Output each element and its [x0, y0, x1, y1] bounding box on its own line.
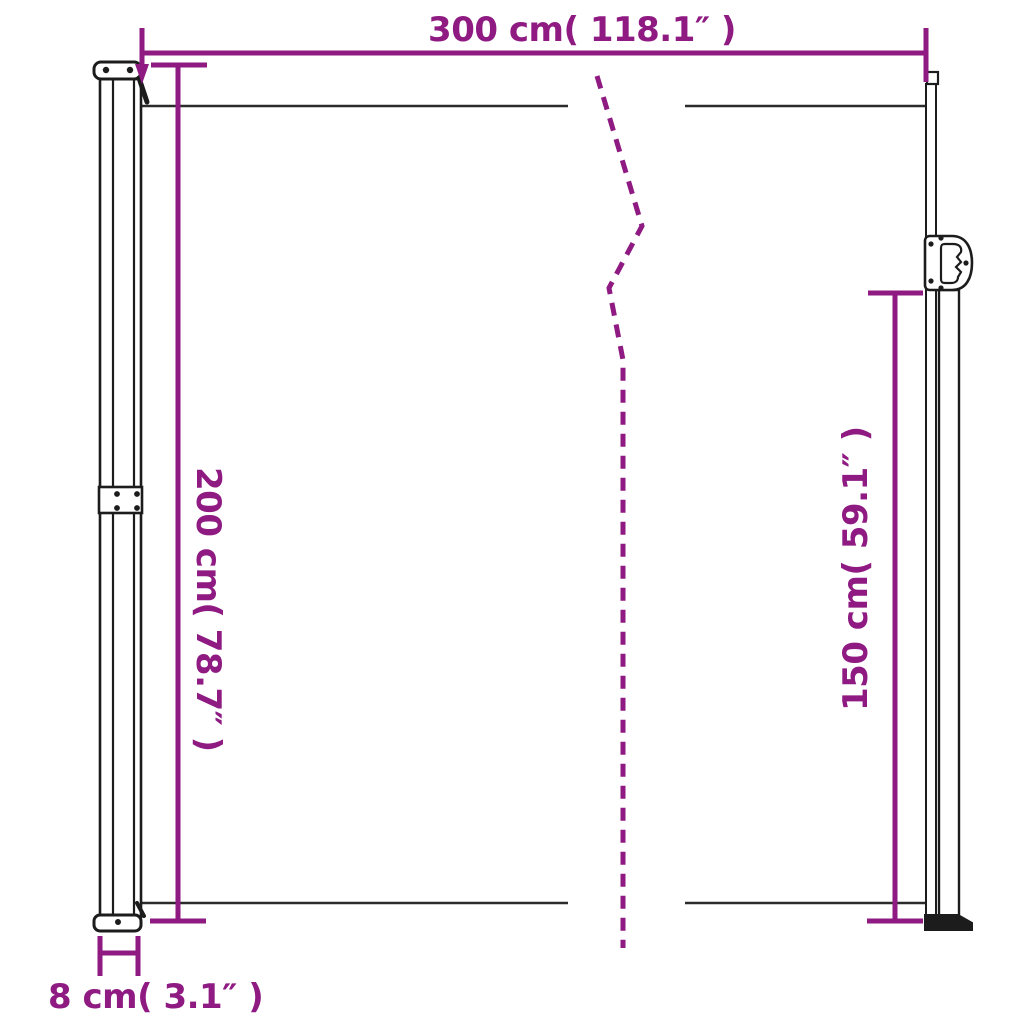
screw-icon — [114, 505, 120, 511]
product-dimension-diagram: 300 cm( 118.1″ ) 200 cm( 78.7″ ) 150 cm(… — [0, 0, 1024, 1024]
left-post — [94, 62, 147, 931]
screw-icon — [134, 491, 140, 497]
right-post — [925, 72, 972, 930]
screw-icon — [938, 235, 943, 240]
width-dimension-label: 300 cm( 118.1″ ) — [428, 10, 736, 50]
awning-fabric-edges — [141, 106, 925, 903]
screw-icon — [928, 278, 933, 283]
screw-icon — [134, 505, 140, 511]
right-post-wide-tube — [939, 290, 959, 918]
screw-icon — [114, 491, 120, 497]
screw-icon — [127, 67, 133, 73]
right-height-dimension-label: 150 cm( 59.1″ ) — [836, 426, 876, 711]
screw-icon — [928, 241, 933, 246]
left-height-dimension-label: 200 cm( 78.7″ ) — [188, 467, 228, 752]
screw-icon — [963, 260, 968, 265]
screw-icon — [103, 67, 109, 73]
right-post-base-plate — [925, 915, 972, 930]
right-post-top-cap — [927, 72, 938, 84]
break-line-dashed — [597, 76, 642, 948]
screw-icon — [938, 285, 943, 290]
right-post-thin-tube — [926, 84, 936, 918]
left-post-top-cap — [94, 62, 141, 79]
screw-icon — [115, 919, 121, 925]
depth-dimension-label: 8 cm( 3.1″ ) — [48, 977, 263, 1017]
awning-diagram-canvas: 300 cm( 118.1″ ) 200 cm( 78.7″ ) 150 cm(… — [0, 0, 1024, 1024]
